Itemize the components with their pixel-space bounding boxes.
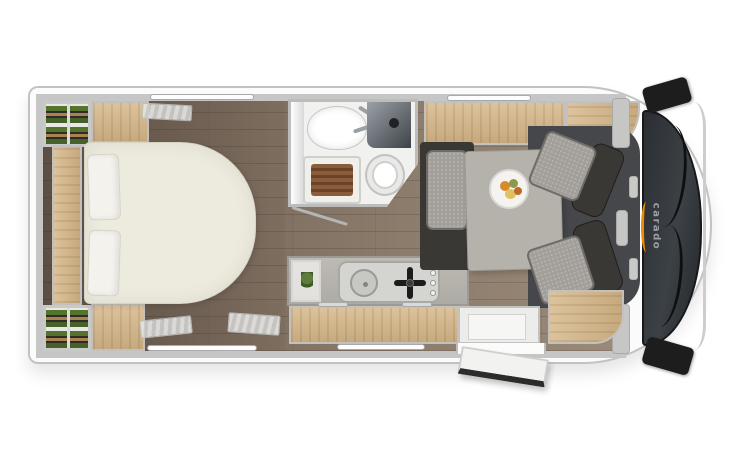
front-bumper-line xyxy=(694,102,706,350)
kitchen-handle-2 xyxy=(402,302,432,307)
cabinet-top-left xyxy=(91,101,149,143)
burner-icon xyxy=(406,279,414,287)
entry-step-inner xyxy=(468,314,526,340)
door-pillar-top xyxy=(612,98,630,148)
drain-icon xyxy=(363,282,368,287)
door-pillar-mid xyxy=(616,210,628,246)
wardrobe-bottom-left xyxy=(43,305,91,351)
logo-text: carado xyxy=(651,196,662,258)
cowl-vent-top xyxy=(629,176,638,198)
kitchen-glass-shelf xyxy=(291,260,321,302)
logo-swoosh-icon xyxy=(641,202,651,252)
kitchen-handle-1 xyxy=(318,302,348,307)
plant-icon xyxy=(301,272,313,290)
wardrobe-top-left xyxy=(43,101,91,147)
side-mirror-top xyxy=(641,76,692,114)
shower-tray xyxy=(303,156,361,204)
kitchen-sink xyxy=(350,269,378,297)
bathroom-mirror-cabinet xyxy=(367,102,411,148)
hob-knob-2 xyxy=(430,280,436,286)
window-bottom-kitchen xyxy=(337,344,425,350)
entry-step xyxy=(458,306,540,344)
motorhome-floorplan: carado xyxy=(0,0,735,450)
pillow-bottom xyxy=(87,229,121,296)
cabinet-knob xyxy=(389,118,399,128)
rug-top xyxy=(142,103,193,122)
rug-bottom-right xyxy=(227,312,280,336)
shower-slats xyxy=(311,164,353,196)
bench-cushion xyxy=(426,150,468,230)
window-bottom-bedroom xyxy=(147,345,257,351)
bathroom xyxy=(288,99,418,207)
bed-headboard xyxy=(52,145,82,305)
hob-knob-3 xyxy=(430,290,436,296)
cowl-vent-bottom xyxy=(629,258,638,280)
hob-knob-1 xyxy=(430,270,436,276)
entry-cabinet xyxy=(548,290,624,344)
side-mirror-bottom xyxy=(641,336,695,376)
toilet xyxy=(365,154,405,196)
pillow-top xyxy=(87,153,121,220)
window-top-bedroom xyxy=(150,94,254,100)
carado-logo: carado xyxy=(645,194,667,258)
kitchen-hob xyxy=(394,267,426,299)
kitchen-cabinet-front xyxy=(289,306,459,344)
cabinet-bottom-left xyxy=(91,303,145,351)
